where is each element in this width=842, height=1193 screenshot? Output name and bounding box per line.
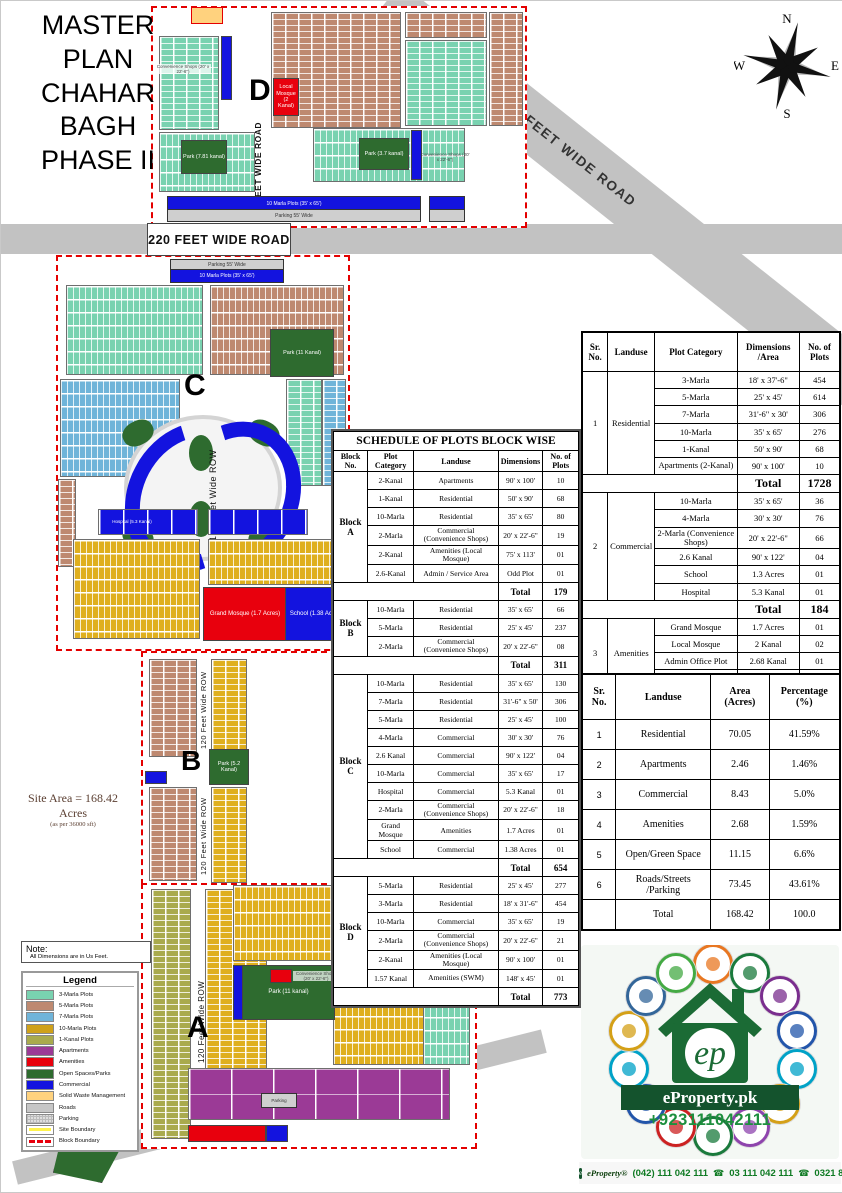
partner-logo-mark xyxy=(706,957,720,971)
total-value: 184 xyxy=(799,600,839,618)
table-cell: 2 Kanal xyxy=(737,635,799,652)
schedule-row: 2-MarlaCommercial (Convenience Shops)20'… xyxy=(334,931,579,951)
schedule-row: 4-MarlaCommercial30' x 30'76 xyxy=(334,728,579,746)
table-cell: 130 xyxy=(543,674,579,692)
table-cell: 2-Marla (Convenience Shops) xyxy=(655,527,737,549)
road-220-label: 220 FEET WIDE ROAD xyxy=(147,223,291,256)
legend-swatch xyxy=(26,1057,54,1067)
commercial-block xyxy=(208,509,308,535)
table-cell: 17 xyxy=(543,764,579,782)
table-cell: 1.3 Acres xyxy=(737,566,799,583)
schedule-row: Block D5-MarlaResidential25' x 45'277 xyxy=(334,877,579,895)
column-header: Landuse xyxy=(414,451,499,472)
table-cell: 01 xyxy=(543,970,579,988)
brand-name: eProperty.pk xyxy=(621,1085,799,1110)
convenience-shops-block xyxy=(145,771,167,784)
compass-west-label: W xyxy=(734,58,746,73)
table-cell: 50' x 90' xyxy=(737,440,799,457)
schedule-total-row: Total773 xyxy=(334,988,579,1006)
table-cell xyxy=(334,988,499,1006)
landuse-total-row: Total184 xyxy=(583,600,840,618)
legend-label: 5-Marla Plots xyxy=(59,1003,93,1009)
brand-phone: +923111042111 xyxy=(621,1111,799,1130)
table-cell: 5-Marla xyxy=(367,877,413,895)
legend-item: 10-Marla Plots xyxy=(26,1023,134,1034)
amenity-strip xyxy=(188,1125,266,1142)
schedule-row: Grand MosqueAmenities1.7 Acres01 xyxy=(334,820,579,841)
grand-mosque-plot: Grand Mosque (1.7 Acres) xyxy=(203,587,287,641)
table-cell: 02 xyxy=(799,635,839,652)
area-row: 4Amenities2.681.59% xyxy=(583,810,840,840)
table-cell: 2-Marla xyxy=(367,526,413,546)
road-220-feet xyxy=(1,224,842,254)
table-cell: 20' x 22'-6" xyxy=(498,526,543,546)
table-cell: Amenities xyxy=(616,810,711,840)
title-line3: PHASE II xyxy=(9,144,187,178)
table-cell: Residential xyxy=(414,601,499,619)
schedule-row: 2-MarlaCommercial (Convenience Shops)20'… xyxy=(334,526,579,546)
commercial-strip xyxy=(266,1125,288,1142)
table-cell: School xyxy=(367,841,413,859)
legend-label: Parking xyxy=(59,1116,79,1122)
partner-logo-mark xyxy=(790,1024,804,1038)
table-cell: 10-Marla xyxy=(367,601,413,619)
column-header: Sr. No. xyxy=(583,333,608,372)
table-cell: 68 xyxy=(799,440,839,457)
table-cell xyxy=(583,475,738,493)
table-cell: 2.68 Kanal xyxy=(737,653,799,670)
column-header: Dimensions xyxy=(498,451,543,472)
schedule-table: SCHEDULE OF PLOTS BLOCK WISE Block No.Pl… xyxy=(331,429,581,1008)
eproperty-mini-icon: e xyxy=(579,1168,582,1179)
table-cell: 04 xyxy=(799,549,839,566)
legend-swatch xyxy=(26,1103,54,1113)
parking-small: Parking xyxy=(261,1093,297,1108)
compass-south-label: S xyxy=(783,106,790,119)
area-table-body: 1Residential70.0541.59%2Apartments2.461.… xyxy=(583,720,840,930)
table-cell xyxy=(583,600,738,618)
table-cell: Residential xyxy=(414,692,499,710)
apartments-block xyxy=(188,1068,450,1120)
plot-grid-10marla xyxy=(208,539,346,585)
landuse-row: 3AmenitiesGrand Mosque1.7 Acres01 xyxy=(583,618,840,635)
table-cell: 66 xyxy=(799,527,839,549)
table-cell: 08 xyxy=(543,637,579,657)
column-header: No. of Plots xyxy=(543,451,579,472)
table-cell: 2-Kanal xyxy=(367,950,413,970)
area-table: Sr. No.LanduseArea (Acres)Percentage (%)… xyxy=(581,673,841,931)
map-shape: Sr. No.LandusePlot CategoryDimensions /A… xyxy=(583,333,840,372)
total-value: 179 xyxy=(543,583,579,601)
table-cell: 1.57 Kanal xyxy=(367,970,413,988)
table-cell: 25' x 45' xyxy=(737,389,799,406)
legend-label: Roads xyxy=(59,1105,76,1111)
table-cell: 100.0 xyxy=(769,900,839,930)
table-cell: 01 xyxy=(543,782,579,800)
landuse-row: 2Commercial10-Marla35' x 65'36 xyxy=(583,493,840,510)
table-cell: 70.05 xyxy=(711,720,769,750)
plot-grid-10marla xyxy=(211,787,247,883)
legend-swatch xyxy=(26,1080,54,1090)
schedule-table-body: Block A2-KanalApartments90' x 100'101-Ka… xyxy=(334,472,579,1006)
partner-logo-mark xyxy=(706,1129,720,1143)
legend-label: 10-Marla Plots xyxy=(59,1026,96,1032)
table-cell: 5.3 Kanal xyxy=(737,583,799,600)
landuse-row: 1Residential3-Marla18' x 37'-6"454 xyxy=(583,372,840,389)
park-c-label: Park (11 Kanal) xyxy=(282,349,322,357)
table-cell: 18 xyxy=(543,800,579,820)
total-value: 1728 xyxy=(799,475,839,493)
column-header: No. of Plots xyxy=(799,333,839,372)
landuse-table-head: Sr. No.LandusePlot CategoryDimensions /A… xyxy=(583,333,840,372)
page-title: MASTER PLAN CHAHAR BAGH PHASE II xyxy=(9,9,187,178)
table-cell: 1.38 Acres xyxy=(498,841,543,859)
table-cell: Grand Mosque xyxy=(655,618,737,635)
phone-icon: ☎ xyxy=(713,1168,724,1179)
table-cell: 20' x 22'-6" xyxy=(498,800,543,820)
map-shape: Block No.Plot CategoryLanduseDimensionsN… xyxy=(334,451,579,472)
table-cell: 21 xyxy=(543,931,579,951)
grand-mosque-label: Grand Mosque (1.7 Acres) xyxy=(209,610,281,619)
table-cell: 5-Marla xyxy=(367,619,413,637)
table-cell: 10-Marla xyxy=(367,764,413,782)
partner-logo-mark xyxy=(622,1024,636,1038)
table-cell: Residential xyxy=(616,720,711,750)
phone-icon: ☎ xyxy=(798,1168,809,1179)
table-cell: 6.6% xyxy=(769,840,839,870)
local-mosque-label: Local Mosque (2 Kanal) xyxy=(274,83,298,110)
legend-item: Site Boundary xyxy=(26,1125,134,1136)
table-cell: 01 xyxy=(543,950,579,970)
park-d-right: Park (3.7 kanal) xyxy=(359,138,409,170)
legend-label: 1-Kanal Plots xyxy=(59,1037,93,1043)
table-cell: 10 xyxy=(799,457,839,474)
table-cell: 19 xyxy=(543,913,579,931)
table-cell: Commercial xyxy=(414,913,499,931)
partner-logo xyxy=(609,1049,649,1089)
table-cell: 2.6 Kanal xyxy=(655,549,737,566)
table-cell: 90' x 100' xyxy=(498,472,543,490)
plot-grid-10marla xyxy=(73,539,200,639)
table-cell: Residential xyxy=(414,619,499,637)
table-cell: 2-Kanal xyxy=(367,472,413,490)
table-cell: Admin / Service Area xyxy=(414,565,499,583)
table-cell: Hospital xyxy=(655,583,737,600)
legend-label: Open Spaces/Parks xyxy=(59,1071,111,1077)
table-cell: Amenities xyxy=(414,820,499,841)
table-cell: 68 xyxy=(543,490,579,508)
table-cell: 35' x 65' xyxy=(498,764,543,782)
legend-item: 7-Marla Plots xyxy=(26,1012,134,1023)
legend-swatch xyxy=(26,1069,54,1079)
total-label: Total xyxy=(498,988,543,1006)
table-cell: 01 xyxy=(543,565,579,583)
total-value: 773 xyxy=(543,988,579,1006)
table-cell: 168.42 xyxy=(711,900,769,930)
table-cell: 100 xyxy=(543,710,579,728)
legend-item: 3-Marla Plots xyxy=(26,989,134,1000)
legend-item: Roads xyxy=(26,1102,134,1113)
table-cell: 148' x 45' xyxy=(498,970,543,988)
table-cell: 50' x 90' xyxy=(498,490,543,508)
table-cell: Residential xyxy=(414,710,499,728)
table-cell: 01 xyxy=(799,566,839,583)
table-cell: School xyxy=(655,566,737,583)
table-cell: 6 xyxy=(583,870,616,900)
footer-phone-1: (042) 111 042 111 xyxy=(632,1168,708,1179)
table-cell: 76 xyxy=(799,510,839,527)
table-cell: 2.6-Kanal xyxy=(367,565,413,583)
schedule-row: Block C10-MarlaResidential35' x 65'130 xyxy=(334,674,579,692)
legend-label: 7-Marla Plots xyxy=(59,1014,93,1020)
plot-grid-3marla xyxy=(405,40,487,126)
column-header: Percentage (%) xyxy=(769,675,839,720)
schedule-row: 10-MarlaCommercial35' x 65'17 xyxy=(334,764,579,782)
table-cell: 237 xyxy=(543,619,579,637)
table-cell: 3-Marla xyxy=(367,895,413,913)
schedule-row: 7-MarlaResidential31'-6" x 50'306 xyxy=(334,692,579,710)
legend-swatch xyxy=(26,1001,54,1011)
schedule-row: Block A2-KanalApartments90' x 100'10 xyxy=(334,472,579,490)
park-b-label: Park (5.2 Kanal) xyxy=(210,760,248,775)
table-cell: 5.0% xyxy=(769,780,839,810)
swm-plot xyxy=(191,7,223,24)
table-cell: Total xyxy=(616,900,711,930)
table-cell: 614 xyxy=(799,389,839,406)
table-cell: 73.45 xyxy=(711,870,769,900)
area-row: 5Open/Green Space11.156.6% xyxy=(583,840,840,870)
table-cell: Commercial xyxy=(414,746,499,764)
column-header: Landuse xyxy=(608,333,655,372)
column-header: Block No. xyxy=(334,451,368,472)
table-cell: 2-Kanal xyxy=(367,545,413,565)
column-header: Plot Category xyxy=(367,451,413,472)
legend-swatch xyxy=(26,1137,54,1147)
table-cell: Commercial (Convenience Shops) xyxy=(414,931,499,951)
partner-logo-mark xyxy=(773,989,787,1003)
table-cell: 5.3 Kanal xyxy=(498,782,543,800)
table-cell: Roads/Streets /Parking xyxy=(616,870,711,900)
total-label: Total xyxy=(737,600,799,618)
legend-title: Legend xyxy=(26,975,134,987)
legend-swatch xyxy=(26,1024,54,1034)
footer-contact-bar: e eProperty® (042) 111 042 111 ☎ 03 111 … xyxy=(579,1162,841,1184)
table-cell: 10 xyxy=(543,472,579,490)
table-cell: 8.43 xyxy=(711,780,769,810)
park-b: Park (5.2 Kanal) xyxy=(209,749,249,785)
legend-line xyxy=(29,1128,51,1131)
landuse-table: Sr. No.LandusePlot CategoryDimensions /A… xyxy=(581,331,841,707)
row-120-label: 120 Feet Wide ROW xyxy=(199,671,208,749)
schedule-row: 2-KanalAmenities (Local Mosque)75' x 113… xyxy=(334,545,579,565)
eproperty-house-icon: ep xyxy=(650,971,770,1089)
park-d-left-label: Park (7.81 kanal) xyxy=(182,153,226,161)
legend: Legend 3-Marla Plots5-Marla Plots7-Marla… xyxy=(21,971,139,1152)
column-header: Landuse xyxy=(616,675,711,720)
table-cell: 25' x 45' xyxy=(498,619,543,637)
table-cell: 18' x 31'-6" xyxy=(498,895,543,913)
legend-swatch xyxy=(26,1046,54,1056)
site-area-line1: Site Area = 168.42 xyxy=(19,791,127,806)
table-cell: 7-Marla xyxy=(367,692,413,710)
ten-marla-strip-label: 10 Marla Plots (35' x 65') xyxy=(267,201,322,207)
table-cell: Amenities (Local Mosque) xyxy=(414,950,499,970)
compass-rose-icon: N E S W xyxy=(734,13,840,119)
legend-label: Site Boundary xyxy=(59,1127,95,1133)
table-cell: Commercial (Convenience Shops) xyxy=(414,800,499,820)
table-cell: 01 xyxy=(799,653,839,670)
table-cell: Amenities (Local Mosque) xyxy=(414,545,499,565)
table-cell: 20' x 22'-6" xyxy=(737,527,799,549)
footer-phone-2: 03 111 042 111 xyxy=(729,1168,793,1179)
legend-item: Commercial xyxy=(26,1079,134,1090)
table-cell: 35' x 65' xyxy=(498,913,543,931)
table-cell xyxy=(334,859,499,877)
total-value: 311 xyxy=(543,656,579,674)
landuse-name: Residential xyxy=(608,372,655,475)
parking-strip-label: Parking 55' Wide xyxy=(275,213,313,219)
table-cell: 66 xyxy=(543,601,579,619)
block-name: Block C xyxy=(334,674,368,859)
table-cell: 10-Marla xyxy=(655,493,737,510)
legend-item: Open Spaces/Parks xyxy=(26,1068,134,1079)
block-name: Block B xyxy=(334,601,368,657)
site-area-line2: Acres xyxy=(19,806,127,821)
legend-items: 3-Marla Plots5-Marla Plots7-Marla Plots1… xyxy=(26,989,134,1147)
partner-logo xyxy=(609,1011,649,1051)
block-b-letter: B xyxy=(181,745,201,777)
legend-label: Amenities xyxy=(59,1059,84,1065)
partner-logo-mark xyxy=(790,1062,804,1076)
table-cell: Residential xyxy=(414,674,499,692)
block-c-area: Parking 55' Wide 10 Marla Plots (35' x 6… xyxy=(56,255,350,651)
table-cell: 306 xyxy=(799,406,839,423)
title-line2: CHAHAR BAGH xyxy=(9,77,187,145)
table-cell: 1.7 Acres xyxy=(737,618,799,635)
table-cell: 4-Marla xyxy=(367,728,413,746)
table-cell: 19 xyxy=(543,526,579,546)
table-cell: 276 xyxy=(799,423,839,440)
total-label: Total xyxy=(498,583,543,601)
table-cell: 4-Marla xyxy=(655,510,737,527)
legend-item: Parking xyxy=(26,1113,134,1124)
table-cell: 43.61% xyxy=(769,870,839,900)
table-cell: Commercial xyxy=(414,764,499,782)
table-cell: 2-Marla xyxy=(367,800,413,820)
schedule-row: 5-MarlaResidential25' x 45'100 xyxy=(334,710,579,728)
row-120-label: 120 Feet Wide ROW xyxy=(199,797,208,875)
column-header: Plot Category xyxy=(655,333,737,372)
map-shape: Sr. No.LanduseArea (Acres)Percentage (%) xyxy=(583,675,840,720)
table-cell: 1.59% xyxy=(769,810,839,840)
total-label: Total xyxy=(498,656,543,674)
table-cell xyxy=(334,583,499,601)
table-cell: 5 xyxy=(583,840,616,870)
sr-no: 1 xyxy=(583,372,608,475)
table-cell: Apartments (2-Kanal) xyxy=(655,457,737,474)
commercial-strip xyxy=(221,36,232,100)
partner-logo-mark xyxy=(622,1062,636,1076)
legend-label: Solid Waste Management xyxy=(59,1093,125,1099)
table-cell: Residential xyxy=(414,508,499,526)
table-cell: Residential xyxy=(414,490,499,508)
total-label: Total xyxy=(498,859,543,877)
table-cell: 90' x 100' xyxy=(737,457,799,474)
schedule-table-title: SCHEDULE OF PLOTS BLOCK WISE xyxy=(333,431,579,450)
column-header: Area (Acres) xyxy=(711,675,769,720)
schedule-row: 2.6-KanalAdmin / Service AreaOdd Plot01 xyxy=(334,565,579,583)
schedule-total-row: Total311 xyxy=(334,656,579,674)
schedule-total-row: Total654 xyxy=(334,859,579,877)
column-header: Dimensions /Area xyxy=(737,333,799,372)
parking-strip: Parking 55' Wide xyxy=(167,209,421,222)
note-title: Note: xyxy=(26,944,146,954)
table-cell: 2.6 Kanal xyxy=(367,746,413,764)
total-value: 654 xyxy=(543,859,579,877)
table-cell: 35' x 65' xyxy=(498,674,543,692)
table-cell: 20' x 22'-6" xyxy=(498,637,543,657)
legend-label: Block Boundary xyxy=(59,1138,100,1144)
table-cell: 01 xyxy=(543,841,579,859)
map-shape xyxy=(734,13,840,119)
plot-grid-5marla xyxy=(489,12,523,126)
table-cell: 2.68 xyxy=(711,810,769,840)
table-cell: 01 xyxy=(799,618,839,635)
table-cell: 10-Marla xyxy=(367,913,413,931)
table-cell: Commercial xyxy=(414,728,499,746)
partner-logo xyxy=(777,1049,817,1089)
park-d-right-label: Park (3.7 kanal) xyxy=(364,150,405,158)
table-cell: 25' x 45' xyxy=(498,710,543,728)
table-cell: 1.46% xyxy=(769,750,839,780)
site-area-note: Site Area = 168.42 Acres (as per 36000 s… xyxy=(19,791,127,828)
area-row: 3Commercial8.435.0% xyxy=(583,780,840,810)
table-cell: 01 xyxy=(543,545,579,565)
table-cell: 306 xyxy=(543,692,579,710)
table-cell: 31'-6" x 50' xyxy=(498,692,543,710)
plot-grid-1kanal xyxy=(151,889,191,1139)
table-cell: 01 xyxy=(799,583,839,600)
table-cell: 30' x 30' xyxy=(737,510,799,527)
table-cell: 7-Marla xyxy=(655,406,737,423)
table-cell: 35' x 65' xyxy=(737,493,799,510)
schedule-row: 5-MarlaResidential25' x 45'237 xyxy=(334,619,579,637)
legend-line xyxy=(29,1140,51,1143)
brand-logo-panel: ep eProperty.pk +923111042111 xyxy=(581,945,839,1159)
schedule-row: 1-KanalResidential50' x 90'68 xyxy=(334,490,579,508)
legend-swatch xyxy=(26,990,54,1000)
total-label: Total xyxy=(737,475,799,493)
compass-north-label: N xyxy=(782,13,792,26)
schedule-table-head: Block No.Plot CategoryLanduseDimensionsN… xyxy=(334,451,579,472)
park-d-left: Park (7.81 kanal) xyxy=(181,140,227,174)
convenience-shops-label: Convenience Shops (20' x 22'-6") xyxy=(419,152,471,162)
park-a-label: Park (11 kanal) xyxy=(267,988,309,997)
master-plan-poster: 300 FEET WIDE ROAD 220 FEET WIDE ROAD Th… xyxy=(0,0,842,1193)
column-header: Sr. No. xyxy=(583,675,616,720)
table-cell: 20' x 22'-6" xyxy=(498,931,543,951)
table-cell: 35' x 65' xyxy=(498,601,543,619)
table-cell: 3-Marla xyxy=(655,372,737,389)
table-cell: 2 xyxy=(583,750,616,780)
table-cell: 454 xyxy=(799,372,839,389)
table-cell: 10-Marla xyxy=(367,508,413,526)
table-cell: 1-Kanal xyxy=(655,440,737,457)
plot-grid-5marla xyxy=(149,787,197,881)
schedule-row: 2-MarlaCommercial (Convenience Shops)20'… xyxy=(334,800,579,820)
legend-item: Amenities xyxy=(26,1057,134,1068)
legend-label: Apartments xyxy=(59,1048,89,1054)
